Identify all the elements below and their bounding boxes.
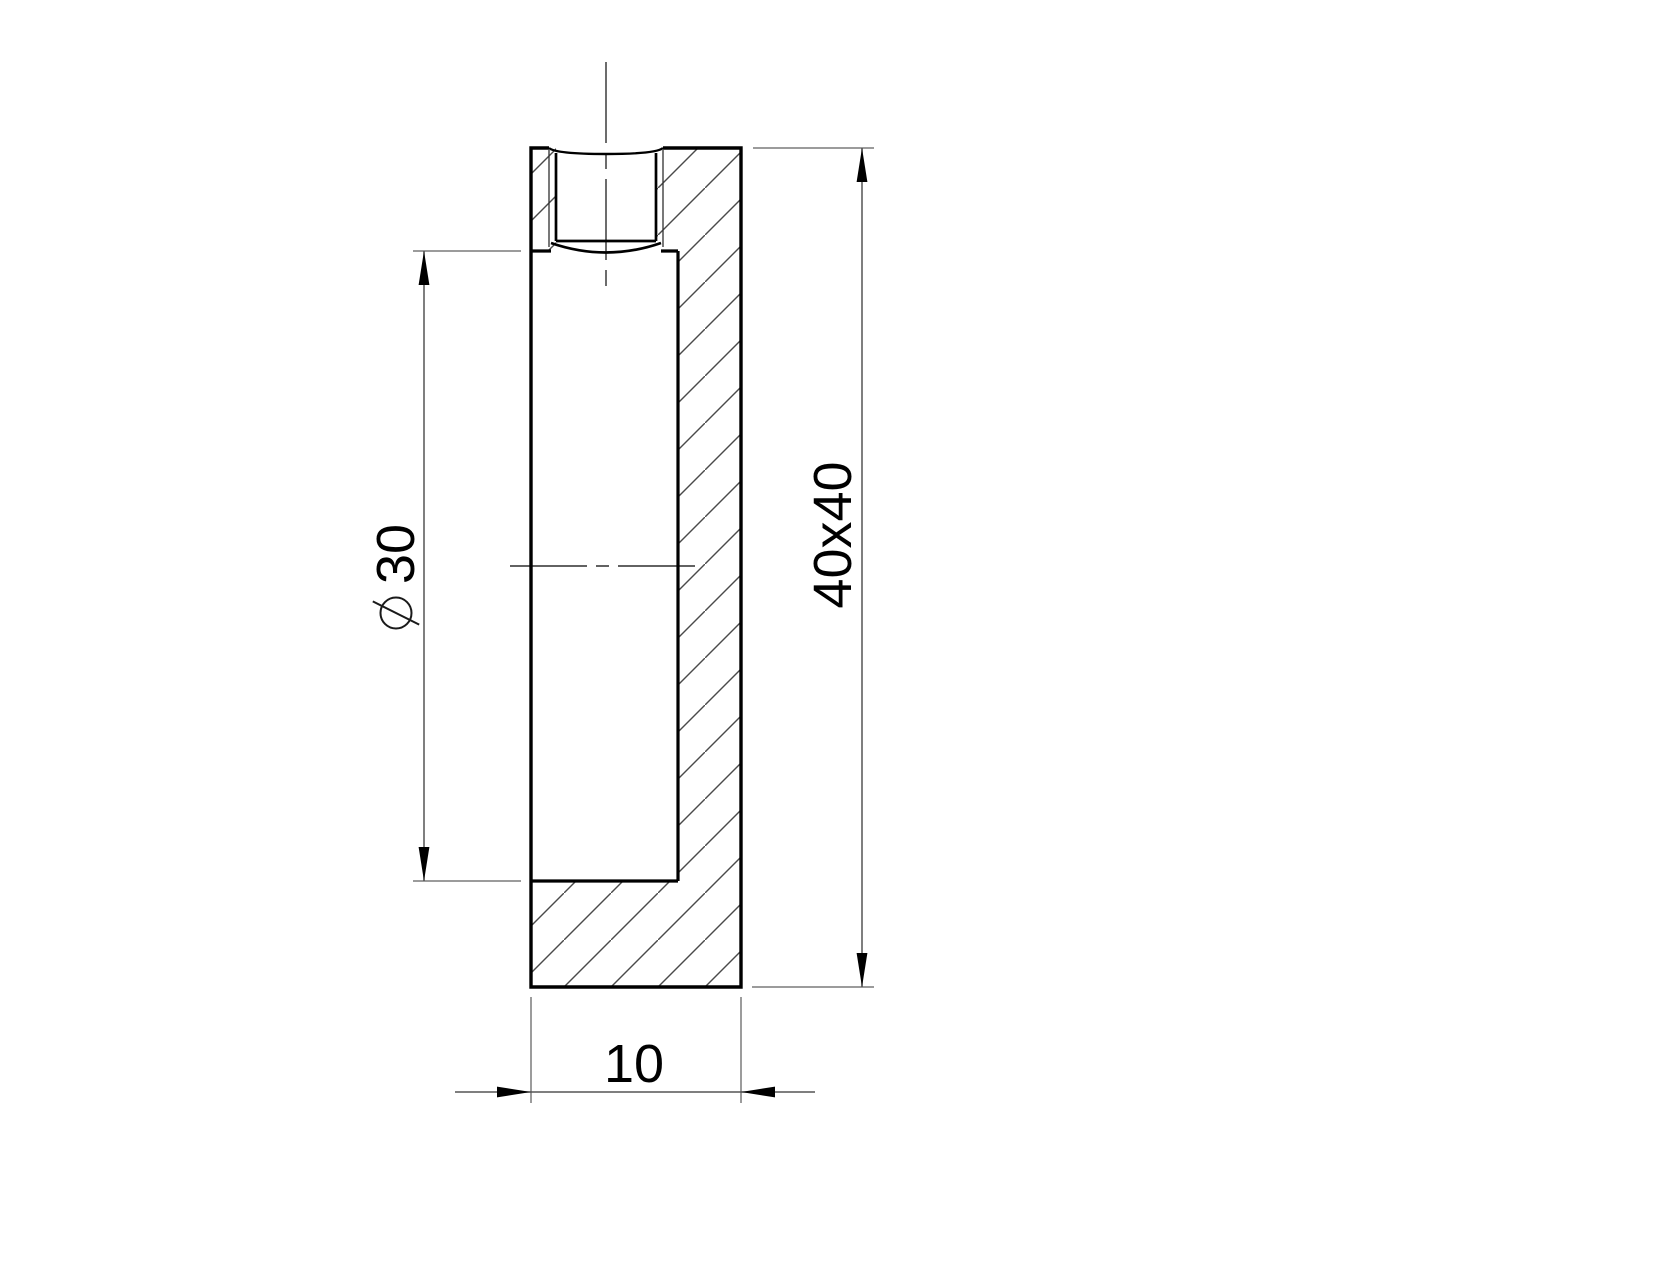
profile-dimension-value: 40x40 xyxy=(803,461,863,608)
page-background xyxy=(0,0,1680,1261)
section-hatching xyxy=(531,148,741,987)
profile-dimension-label: 40x40 xyxy=(803,461,863,608)
drawing-canvas: 30 40x40 10 xyxy=(0,0,1680,1261)
section-view-drawing: 30 40x40 10 xyxy=(0,0,1680,1261)
diameter-dimension-value: 30 xyxy=(366,524,426,584)
thickness-dimension-value: 10 xyxy=(604,1034,664,1094)
